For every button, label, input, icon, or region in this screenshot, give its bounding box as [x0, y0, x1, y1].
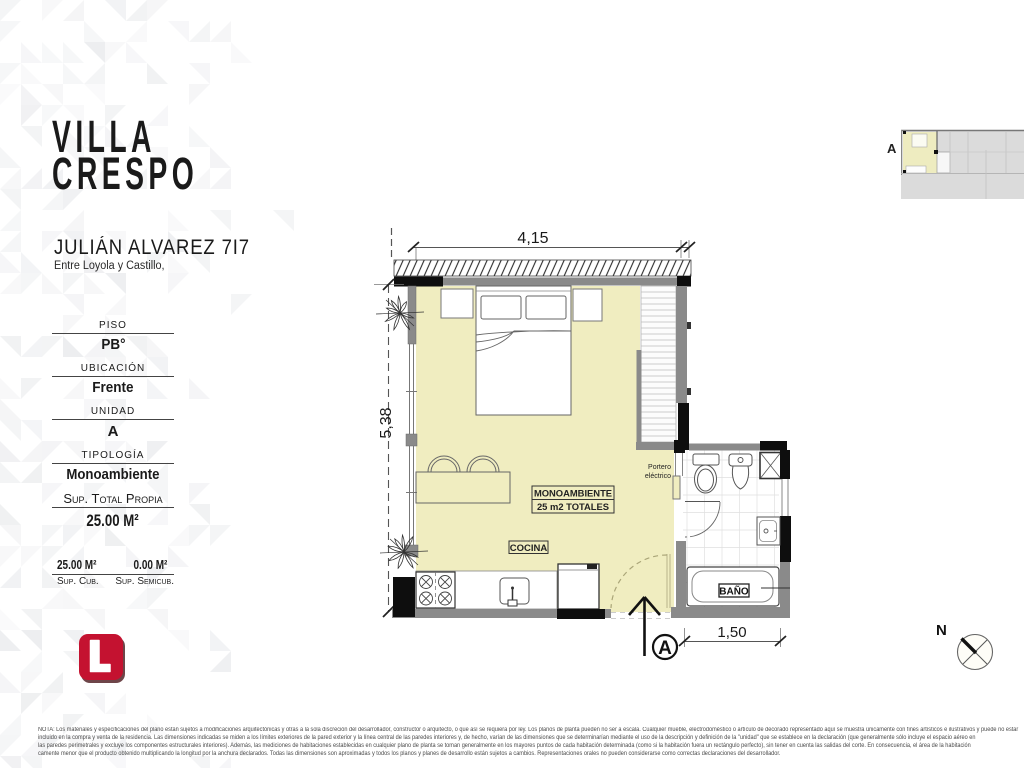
svg-text:4,15: 4,15	[517, 230, 548, 247]
svg-text:COCINA: COCINA	[510, 543, 548, 554]
svg-text:BAÑO: BAÑO	[719, 585, 749, 598]
svg-text:N: N	[936, 622, 947, 639]
svg-text:1,50: 1,50	[717, 624, 746, 641]
svg-text:MONOAMBIENTE: MONOAMBIENTE	[534, 488, 612, 499]
svg-text:A: A	[658, 638, 672, 659]
svg-text:25 m2 TOTALES: 25 m2 TOTALES	[537, 501, 609, 512]
svg-text:5,38: 5,38	[378, 407, 395, 438]
svg-text:eléctrico: eléctrico	[645, 473, 671, 480]
svg-text:Portero: Portero	[648, 464, 671, 471]
svg-text:A: A	[887, 141, 897, 156]
